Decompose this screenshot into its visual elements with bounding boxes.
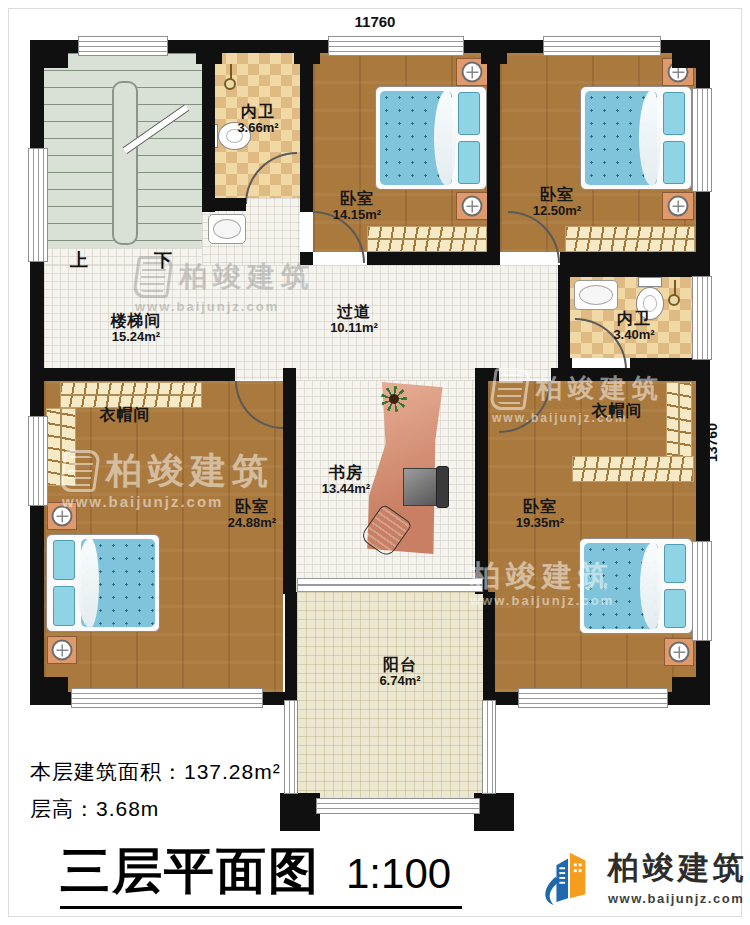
balcony-railing [316,798,480,814]
wall [300,252,313,265]
wall [558,265,570,370]
nightstand-icon [47,636,77,664]
brand-name: 柏竣建筑 [608,847,748,889]
floor-balcony [297,592,483,800]
window [328,36,464,56]
plan-title-bar: 三层平面图 1:100 [60,838,451,905]
room-label-bath-right: 内卫3.40m² [592,310,676,342]
room-label-bath-top: 内卫3.66m² [214,103,302,135]
wardrobe-icon [60,382,202,408]
bed-pillow [458,141,480,184]
window [692,276,712,360]
brand-website: www.baijunjz.com [608,891,748,906]
floor-area-value: 137.28m² [184,760,281,783]
toilet-tank [638,277,663,287]
balcony-pillar [474,793,514,831]
lamp-icon [668,196,689,217]
bed-icon [46,534,160,632]
bed-icon [375,86,487,190]
dimension-top: 11760 [0,13,750,30]
shower-hook-icon [668,294,680,306]
bed-blanket-fold [77,538,99,628]
window [518,688,668,708]
lamp-icon [52,640,73,661]
window [543,36,661,56]
wardrobe-icon [46,408,76,486]
wall [30,368,235,381]
wall-corner [30,677,68,705]
nightstand-icon [662,192,694,220]
nightstand-icon [47,502,77,530]
room-label-corridor: 过道10.11m² [308,303,400,335]
room-label-cloak-left: 衣帽间 [80,406,170,424]
balcony-railing [482,700,496,794]
brand-block: 柏竣建筑 www.baijunjz.com [540,844,748,908]
monitor-icon [403,468,437,506]
floor-stats: 本层建筑面积：137.28m² 层高：3.68m [30,758,281,832]
bed-icon [580,86,692,190]
shower-hook-icon [224,78,236,90]
lamp-icon [52,506,73,527]
room-label-cloak-right: 衣帽间 [572,402,662,420]
lamp-icon [669,642,690,663]
room-label-balcony: 阳台6.74m² [354,656,446,688]
window [71,688,263,708]
stair-down-label: 下 [154,248,172,272]
title-underline [60,906,462,909]
wall [487,40,500,265]
wardrobe-icon [572,456,694,482]
bed-pillow [663,141,685,184]
floor-plan-page: 11760 13760 上 下 [0,0,750,925]
room-label-study: 书房13.44m² [300,464,392,496]
wall [283,368,296,594]
lamp-icon [462,196,483,217]
wall [551,368,710,381]
room-label-stairwell: 楼梯间15.24m² [88,312,184,344]
monitor-stand [436,466,449,508]
balcony-pillar [280,793,320,831]
bed-pillow [53,586,75,626]
wall-corner [672,40,710,68]
floor-area-label: 本层建筑面积： [30,760,184,783]
bed-blanket-fold [434,90,456,186]
wall-corner [30,40,68,68]
bed-blanket-fold [639,90,661,186]
nightstand-icon [456,192,488,220]
stairs-icon [44,53,202,249]
floor-height-value: 3.68m [96,797,159,820]
bed-pillow [458,92,480,135]
bed-blanket-fold [640,542,662,630]
balcony-sliding-door [297,578,483,592]
wall [558,265,710,277]
window [78,36,168,56]
wall [560,252,696,265]
plant-icon [381,386,407,412]
wall [483,592,495,695]
bed-pillow [663,92,685,135]
balcony-railing [284,700,298,794]
bed-pillow [664,544,686,584]
room-label-bedroom-right: 卧室19.35m² [494,498,586,530]
sink-icon [574,280,618,310]
wall [202,198,246,211]
dimension-right: 13760 [704,423,720,462]
wardrobe-icon [367,226,487,252]
wall [475,368,488,594]
bed-pillow [664,589,686,629]
plan-title: 三层平面图 [60,838,320,905]
nightstand-icon [664,638,694,666]
wall-corner [672,677,710,705]
room-label-bedroom-top-right: 卧室12.50m² [512,186,602,218]
sink-icon [208,214,246,244]
room-label-bedroom-left: 卧室24.88m² [206,498,298,530]
stair-up-label: 上 [70,248,88,272]
room-label-bedroom-top-mid: 卧室14.15m² [312,190,402,222]
window [28,148,48,262]
window [28,416,48,506]
lamp-icon [462,62,483,83]
bed-pillow [53,540,75,580]
bed-icon [579,538,693,634]
brand-logo-icon [540,844,598,908]
wall [285,592,297,695]
floor-height-label: 层高： [30,797,96,820]
wall [367,252,487,265]
wardrobe-icon [565,226,695,252]
window [692,88,712,192]
window [692,541,712,641]
plan-scale: 1:100 [346,850,451,898]
stair-railing [112,81,138,245]
